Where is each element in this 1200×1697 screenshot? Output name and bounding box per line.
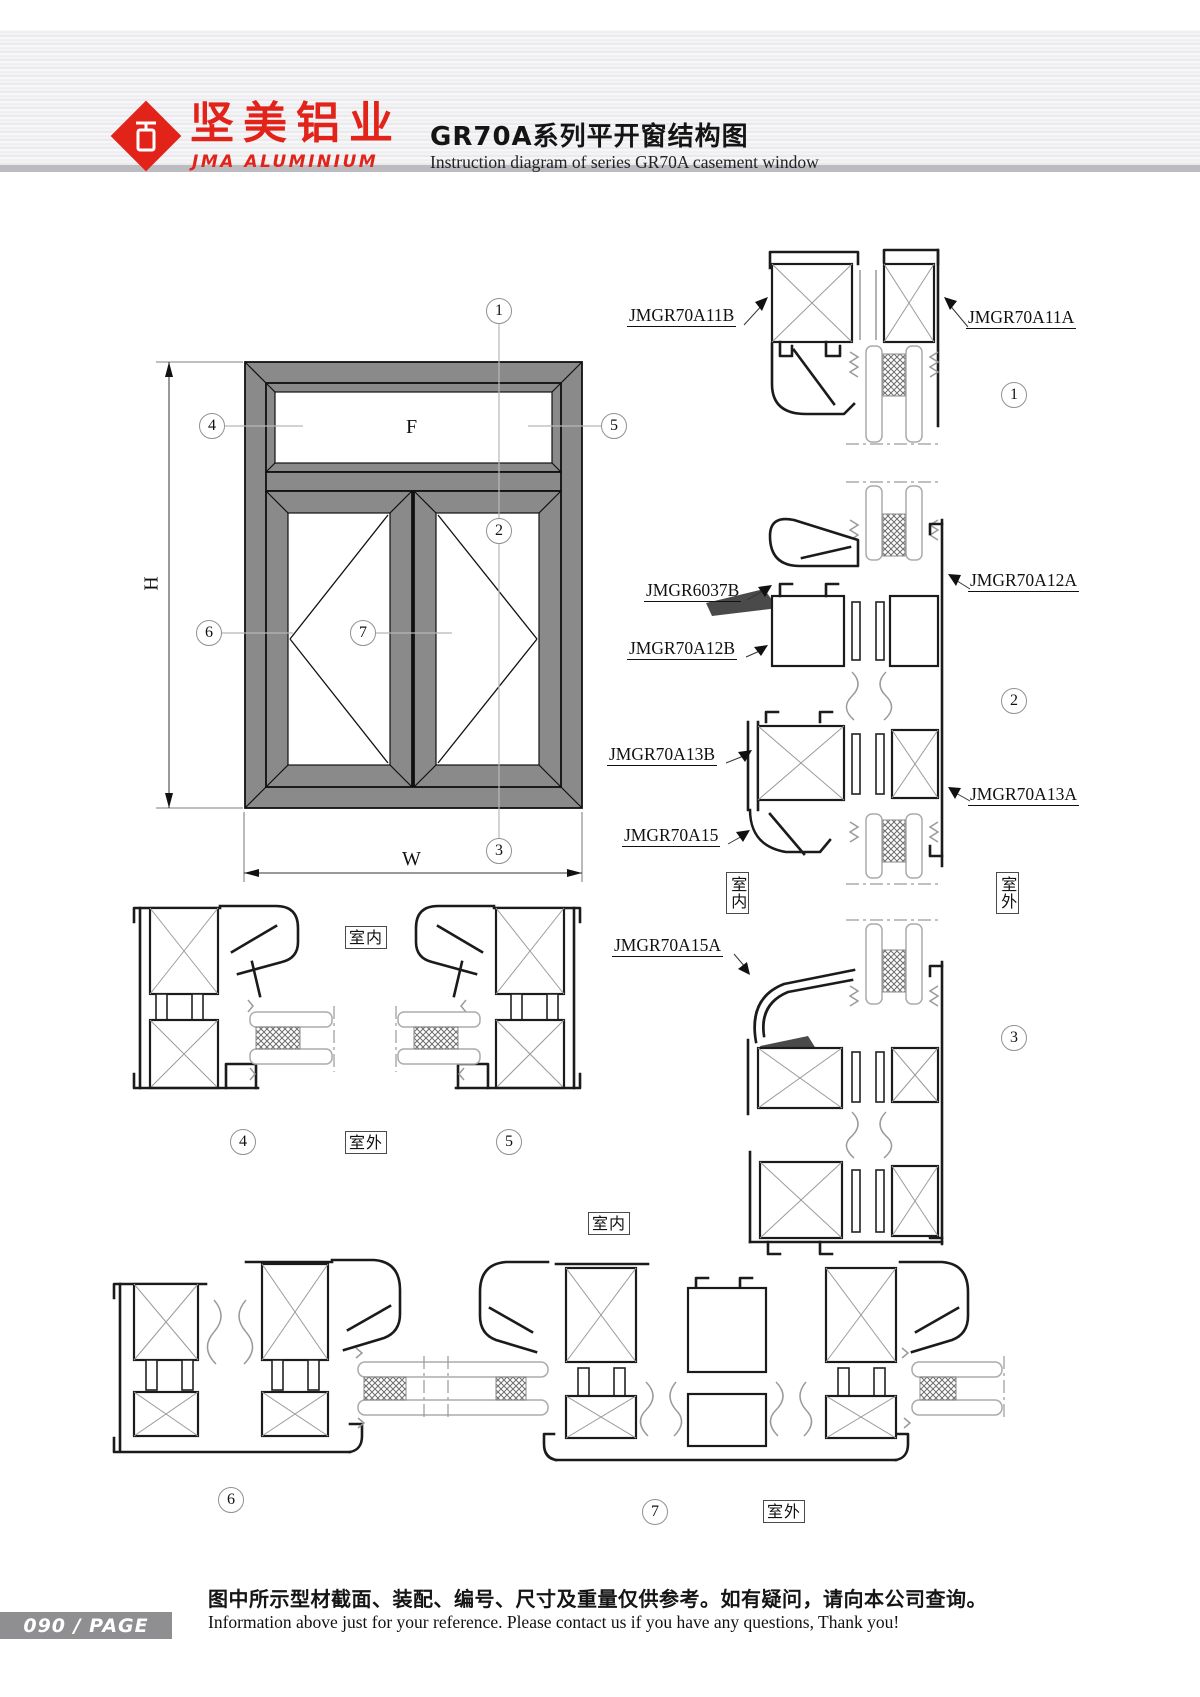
callout-4-section: 4: [230, 1129, 256, 1155]
callout-1-section: 1: [1001, 382, 1027, 408]
section-2-drawing: [706, 486, 942, 920]
indoor-label-v: 室内: [726, 872, 749, 914]
dim-width-label: W: [402, 848, 421, 871]
section-6-drawing: [114, 1260, 400, 1452]
part-label-jmgr70a12b: JMGR70A12B: [627, 639, 737, 660]
footer-note-en: Information above just for your referenc…: [208, 1612, 1068, 1633]
part-label-jmgr70a11a: JMGR70A11A: [966, 308, 1076, 329]
outdoor-label-7: 室外: [763, 1500, 805, 1523]
outdoor-label-v: 室外: [996, 872, 1019, 914]
part-label-jmgr70a15a: JMGR70A15A: [612, 936, 723, 957]
callout-2-section: 2: [1001, 688, 1027, 714]
callout-7-section: 7: [642, 1499, 668, 1525]
indoor-label-45: 室内: [345, 926, 387, 949]
callout-6-section: 6: [218, 1487, 244, 1513]
part-label-jmgr6037b: JMGR6037B: [644, 581, 741, 602]
section-7-drawing: [480, 1262, 1004, 1460]
page-number-badge: 090 / PAGE: [0, 1612, 172, 1639]
callout-7-elevation: 7: [350, 620, 376, 646]
fixed-panel-label: F: [406, 416, 417, 439]
section-4-drawing: [134, 906, 334, 1088]
callout-1-elevation: 1: [486, 298, 512, 324]
section-3-drawing: [748, 924, 942, 1254]
callout-2-elevation: 2: [486, 518, 512, 544]
callout-4-elevation: 4: [199, 413, 225, 439]
indoor-label-7: 室内: [588, 1212, 630, 1235]
part-label-jmgr70a13a: JMGR70A13A: [968, 785, 1079, 806]
section-1-drawing: [770, 250, 940, 482]
drawings-canvas: [0, 0, 1200, 1697]
callout-5-elevation: 5: [601, 413, 627, 439]
outdoor-label-45: 室外: [345, 1131, 387, 1154]
section-5-drawing: [396, 906, 580, 1088]
dim-height-label: H: [141, 576, 164, 590]
callout-6-elevation: 6: [196, 620, 222, 646]
callout-3-elevation: 3: [486, 838, 512, 864]
part-label-jmgr70a15: JMGR70A15: [622, 826, 720, 847]
footer-note-cn: 图中所示型材截面、装配、编号、尺寸及重量仅供参考。如有疑问，请向本公司查询。: [208, 1583, 1068, 1612]
part-label-jmgr70a11b: JMGR70A11B: [627, 306, 736, 327]
callout-3-section: 3: [1001, 1025, 1027, 1051]
elevation-drawing: [156, 324, 601, 882]
callout-5-section: 5: [496, 1129, 522, 1155]
part-label-jmgr70a12a: JMGR70A12A: [968, 571, 1079, 592]
catalog-page: 坚美铝业 JMA ALUMINIUM GR70A系列平开窗结构图 Instruc…: [0, 0, 1200, 1697]
part-label-jmgr70a13b: JMGR70A13B: [607, 745, 717, 766]
glass-strip-6-7: [358, 1356, 548, 1420]
